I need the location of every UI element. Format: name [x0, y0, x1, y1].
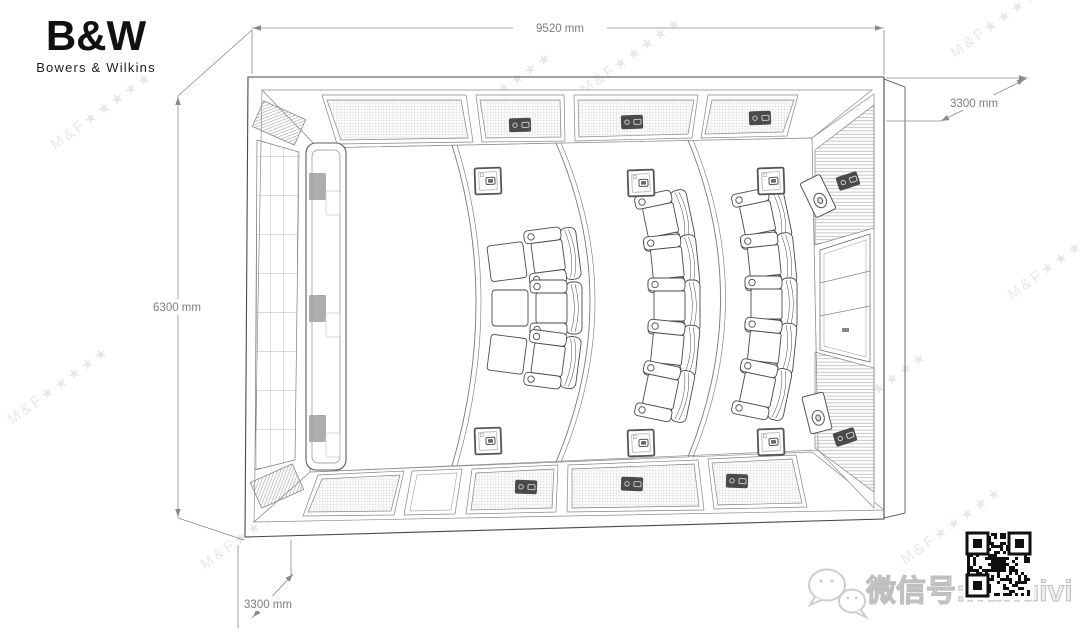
screen-speaker	[309, 173, 326, 200]
watermark-text: M&F★★★★★	[947, 0, 1056, 61]
dimension-arrowhead	[175, 97, 181, 105]
floor-speaker-box	[758, 429, 785, 456]
screen-speaker	[309, 295, 326, 322]
floor-speaker-box	[475, 428, 502, 455]
dim-label-front: 3300 mm	[244, 599, 292, 611]
speaker-grille	[749, 111, 771, 126]
ottoman	[487, 334, 527, 374]
baffle-grid	[255, 140, 299, 470]
watermark-text: M&F★★★★★	[47, 67, 156, 153]
floor-speaker-box	[758, 168, 785, 195]
dimension-arrowhead	[940, 115, 950, 124]
dim-label-top: 9520 mm	[536, 23, 584, 35]
floor-speaker-box	[475, 168, 502, 195]
speaker-grille	[726, 474, 748, 489]
top-wall-panels	[322, 95, 798, 144]
ottoman	[487, 242, 527, 282]
speaker-grille	[515, 480, 537, 495]
ottoman	[492, 290, 528, 326]
floor-plan-drawing: M&F★★★★★M&F★★★★★M&F★★★★★M&F★★★★★M&F★★★★★…	[0, 0, 1080, 633]
watermark-text: M&F★★★★★	[1004, 217, 1080, 303]
recliner-seat	[523, 225, 582, 287]
floor-speaker-box	[628, 430, 655, 457]
qr-code	[963, 529, 1034, 600]
dimension-arrowhead	[175, 509, 181, 517]
rear-cabinet	[820, 234, 870, 362]
page: B&W Bowers & Wilkins M&F★★★★★M&F★★★★★M&F…	[0, 0, 1080, 633]
cabinet-handle	[842, 328, 849, 332]
dimension-arrowhead	[875, 25, 883, 31]
speaker-grille	[621, 477, 643, 492]
speaker-grille	[621, 115, 643, 130]
recliner-seat	[523, 329, 582, 391]
dim-label-left: 6300 mm	[153, 302, 201, 314]
speaker-grille	[509, 118, 531, 133]
dim-label-right: 3300 mm	[950, 98, 998, 110]
floor-speaker-box	[628, 170, 655, 197]
wechat-icon	[809, 570, 866, 618]
screen-speaker	[309, 415, 326, 442]
dimension-arrowhead	[253, 25, 261, 31]
watermark-text: M&F★★★★★	[4, 342, 113, 428]
recliner-seat	[530, 280, 582, 336]
